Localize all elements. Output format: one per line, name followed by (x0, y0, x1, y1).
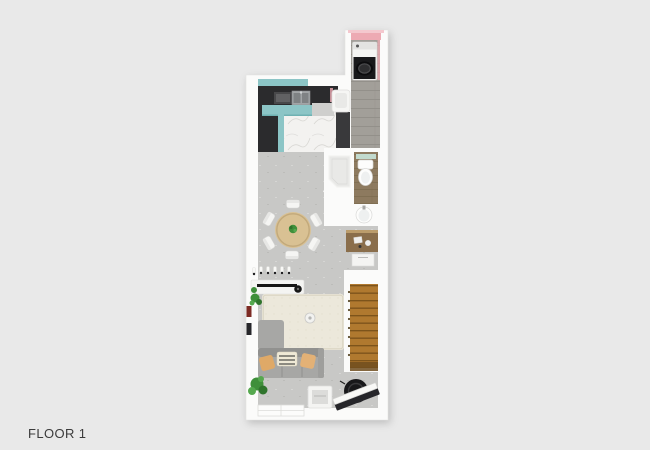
tall-cabinet (336, 112, 350, 152)
wall-decor (247, 306, 252, 317)
wall-decor (247, 323, 252, 335)
dishwasher (312, 103, 334, 116)
toilet (358, 160, 373, 186)
staircase (344, 270, 380, 372)
floor-label: FLOOR 1 (28, 426, 86, 441)
table-centerpiece (289, 225, 297, 233)
kitchen-sink (292, 91, 310, 105)
bathroom (323, 148, 380, 226)
cooktop (274, 92, 292, 104)
vanity-sink (352, 204, 378, 226)
shower (329, 156, 350, 187)
throw-blanket (277, 352, 297, 366)
drawer-unit (352, 254, 374, 266)
floor-plan (0, 0, 650, 450)
base-cabinets (262, 105, 312, 116)
dining-table (275, 212, 311, 248)
wash-basin (330, 88, 350, 112)
window (258, 405, 304, 416)
floor-plan-page: FLOOR 1 (0, 0, 650, 450)
tv-bar (257, 284, 297, 287)
laundry-corridor (348, 30, 384, 152)
ceiling-lamp (305, 313, 315, 323)
cushion (300, 353, 317, 370)
picture-table (308, 386, 332, 408)
washing-machine (353, 42, 378, 80)
